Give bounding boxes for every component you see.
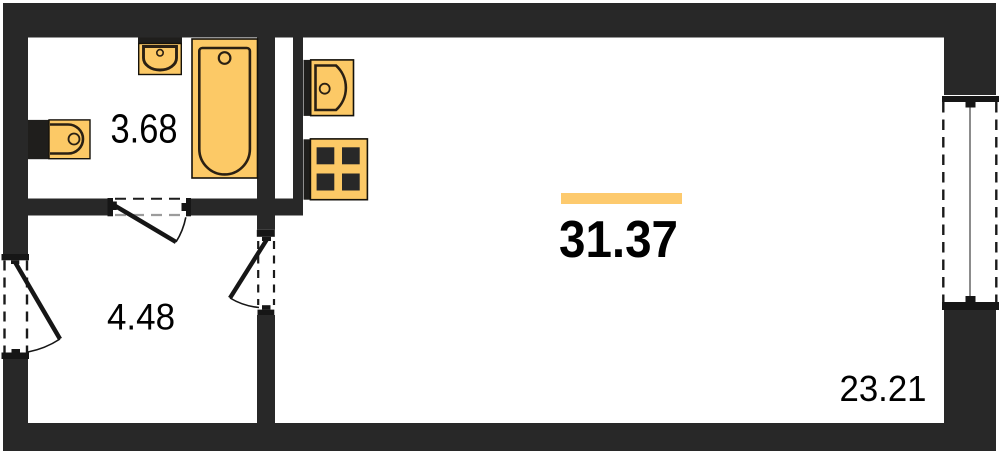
svg-text:4.48: 4.48	[107, 297, 175, 338]
svg-text:3.68: 3.68	[111, 106, 178, 152]
svg-text:23.21: 23.21	[840, 368, 927, 409]
svg-text:31.37: 31.37	[559, 211, 678, 269]
